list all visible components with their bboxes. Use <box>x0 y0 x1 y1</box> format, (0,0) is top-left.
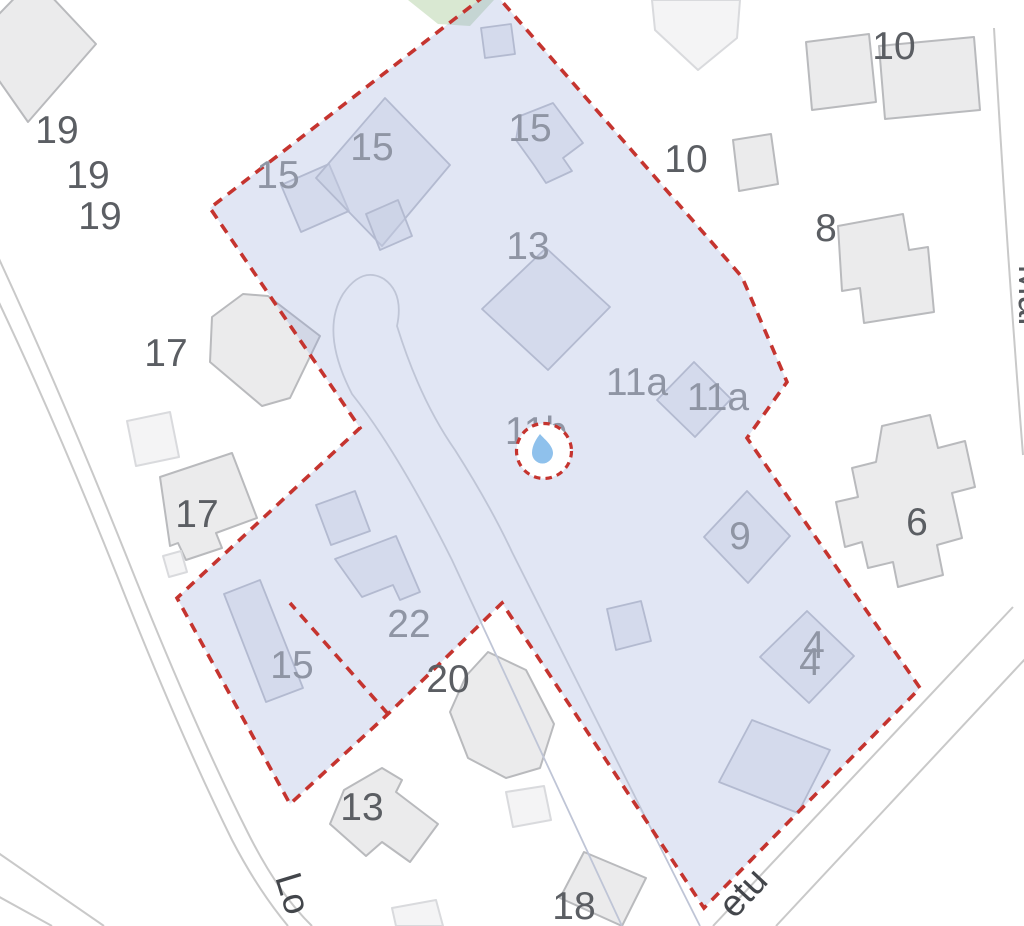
house-number-label: 10 <box>872 25 915 68</box>
house-number-label-inside: 11a <box>606 361 668 404</box>
building-footprint <box>733 134 778 191</box>
house-number-label: 17 <box>175 493 218 536</box>
house-number-label-inside: 9 <box>729 515 751 558</box>
street-name-label: Mal <box>1010 264 1024 325</box>
map-canvas[interactable]: 1515151311a11a11b22159441919191717101086… <box>0 0 1024 926</box>
house-number-label: 8 <box>815 207 837 250</box>
house-number-label: 19 <box>66 154 109 197</box>
house-number-label-inside: 22 <box>387 603 430 646</box>
house-number-label: 20 <box>426 658 469 701</box>
house-number-label: 6 <box>906 501 928 544</box>
building-footprint <box>506 786 551 827</box>
map-svg[interactable]: 1515151311a11a11b22159441919191717101086… <box>0 0 1024 926</box>
house-number-label-inside: 15 <box>350 126 393 169</box>
house-number-label-inside: 11a <box>687 376 749 419</box>
house-number-label: 18 <box>552 885 595 926</box>
house-number-label-inside: 15 <box>270 644 313 687</box>
house-number-label: 19 <box>35 109 78 152</box>
house-number-label: 19 <box>78 195 121 238</box>
building-footprint <box>127 412 179 466</box>
location-marker[interactable] <box>517 424 572 479</box>
house-number-label: 13 <box>340 786 383 829</box>
house-number-label: 17 <box>144 332 187 375</box>
house-number-label-inside: 13 <box>506 225 549 268</box>
building-footprint <box>806 34 876 110</box>
building-footprint-inside-parcel <box>481 24 515 58</box>
house-number-label: 10 <box>664 138 707 181</box>
house-number-label-inside: 15 <box>508 107 551 150</box>
house-number-label-inside: 4 <box>799 641 821 684</box>
house-number-label-inside: 15 <box>256 154 299 197</box>
